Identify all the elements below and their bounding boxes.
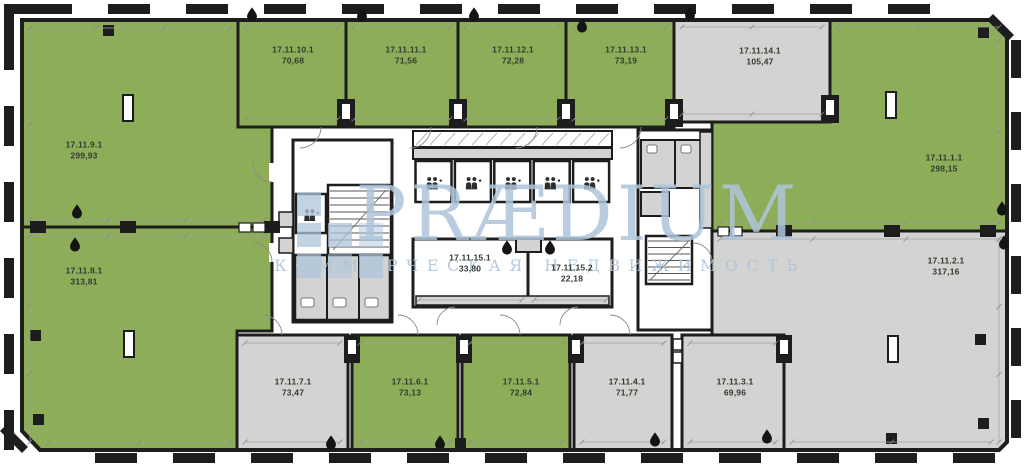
facade-column [4, 4, 14, 44]
door-shaft [562, 104, 570, 119]
facade-column [420, 4, 462, 14]
unit-region-17-11-4-1[interactable] [574, 335, 672, 450]
facade-column [732, 4, 774, 14]
toilet-fixture-icon [365, 298, 378, 307]
elevator-cell [416, 161, 452, 202]
riser-shaft [123, 95, 133, 121]
door-swing-arc [560, 307, 578, 325]
facade-column [884, 225, 900, 237]
door-shaft [342, 104, 350, 119]
facade-column [1011, 40, 1021, 78]
toilet-fixture-icon [681, 145, 691, 153]
toilet-fixture-icon [333, 298, 346, 307]
vestibule-box [516, 239, 541, 252]
shaft-zone [413, 131, 612, 147]
door-swing-arc [610, 315, 630, 335]
facade-column [95, 453, 137, 463]
facade-column [1011, 328, 1021, 366]
facade-column [1011, 184, 1021, 222]
facade-column [30, 330, 41, 341]
facade-column [33, 414, 44, 425]
door-swing-arc [437, 307, 455, 325]
door-swing-arc [500, 315, 520, 335]
shaft-box [279, 238, 293, 253]
facade-column [4, 334, 14, 374]
facade-column [953, 453, 995, 463]
facade-column [1011, 256, 1021, 294]
vestibule-cell [673, 352, 682, 363]
unit-region-17-11-6-1[interactable] [352, 335, 458, 450]
facade-column [719, 453, 761, 463]
unit-region-17-11-11-1[interactable] [346, 20, 458, 127]
toilet-fixture-icon [647, 145, 657, 153]
door-shaft [826, 100, 834, 115]
facade-column [498, 4, 540, 14]
facade-column [776, 225, 792, 237]
water-drop-icon [469, 7, 479, 21]
elevator-cell [534, 161, 570, 202]
riser-shaft [888, 336, 898, 362]
facade-column [797, 453, 839, 463]
door-leaf [718, 227, 729, 236]
facade-column [563, 453, 605, 463]
unit-region-17-11-8-1[interactable] [22, 227, 272, 450]
facade-column [251, 453, 293, 463]
elevator-cell [455, 161, 491, 202]
facade-column [978, 418, 989, 429]
facade-column [1011, 400, 1021, 438]
shaft-box [700, 132, 712, 228]
elevator-lobby-band [413, 148, 612, 159]
riser-shaft [886, 92, 896, 118]
facade-column [103, 25, 114, 36]
door-gap [269, 163, 275, 182]
floor-plan: PRÆDIUM КОММЕРЧЕСКАЯ НЕДВИЖИМОСТЬ 17.11.… [0, 0, 1024, 464]
facade-column [980, 225, 996, 237]
facade-column [485, 453, 527, 463]
facade-column [264, 4, 306, 14]
riser-shaft [124, 331, 134, 357]
facade-column [108, 4, 150, 14]
unit-region-17-11-14-1[interactable] [674, 20, 830, 122]
facade-column [455, 438, 466, 449]
unit-region-17-11-5-1[interactable] [462, 335, 570, 450]
facade-column [4, 258, 14, 298]
facade-column [186, 4, 228, 14]
unit-region-17-11-9-1[interactable] [22, 20, 272, 227]
door-shaft [670, 104, 678, 119]
door-shaft [348, 340, 356, 354]
facade-column [407, 453, 449, 463]
door-shaft [572, 340, 580, 354]
door-shaft [454, 104, 462, 119]
facade-column [4, 106, 14, 146]
unit-region-17-11-7-1[interactable] [237, 335, 348, 450]
floor-plan-drawing [0, 0, 1024, 464]
elevator-cell [494, 161, 530, 202]
door-leaf [239, 223, 251, 232]
wc-block [295, 255, 390, 320]
door-leaf [731, 227, 742, 236]
unit-region-17-11-13-1[interactable] [566, 20, 674, 127]
door-shaft [460, 340, 468, 354]
shaft-box [279, 212, 293, 227]
facade-column [810, 4, 852, 14]
elevator-cell [296, 194, 326, 233]
facade-column [120, 221, 136, 233]
facade-column [4, 182, 14, 222]
unit-region-17-11-10-1[interactable] [238, 20, 346, 127]
facade-column [978, 27, 989, 38]
elevator-cell [573, 161, 609, 202]
door-leaf [253, 223, 265, 232]
toilet-fixture-icon [301, 298, 314, 307]
door-swing-arc [398, 315, 418, 335]
facade-column [975, 334, 986, 345]
facade-column [329, 453, 371, 463]
facade-column [576, 4, 618, 14]
facade-column [875, 453, 917, 463]
facade-column [1011, 112, 1021, 150]
door-shaft [780, 340, 788, 354]
facade-column [30, 221, 46, 233]
water-drop-icon [247, 7, 257, 21]
facade-column [641, 453, 683, 463]
service-band [416, 296, 609, 305]
facade-column [264, 221, 280, 233]
facade-column [888, 4, 930, 14]
wc-cell [641, 192, 669, 216]
unit-region-17-11-12-1[interactable] [458, 20, 566, 127]
vestibule-cell [673, 339, 682, 350]
facade-column [173, 453, 215, 463]
